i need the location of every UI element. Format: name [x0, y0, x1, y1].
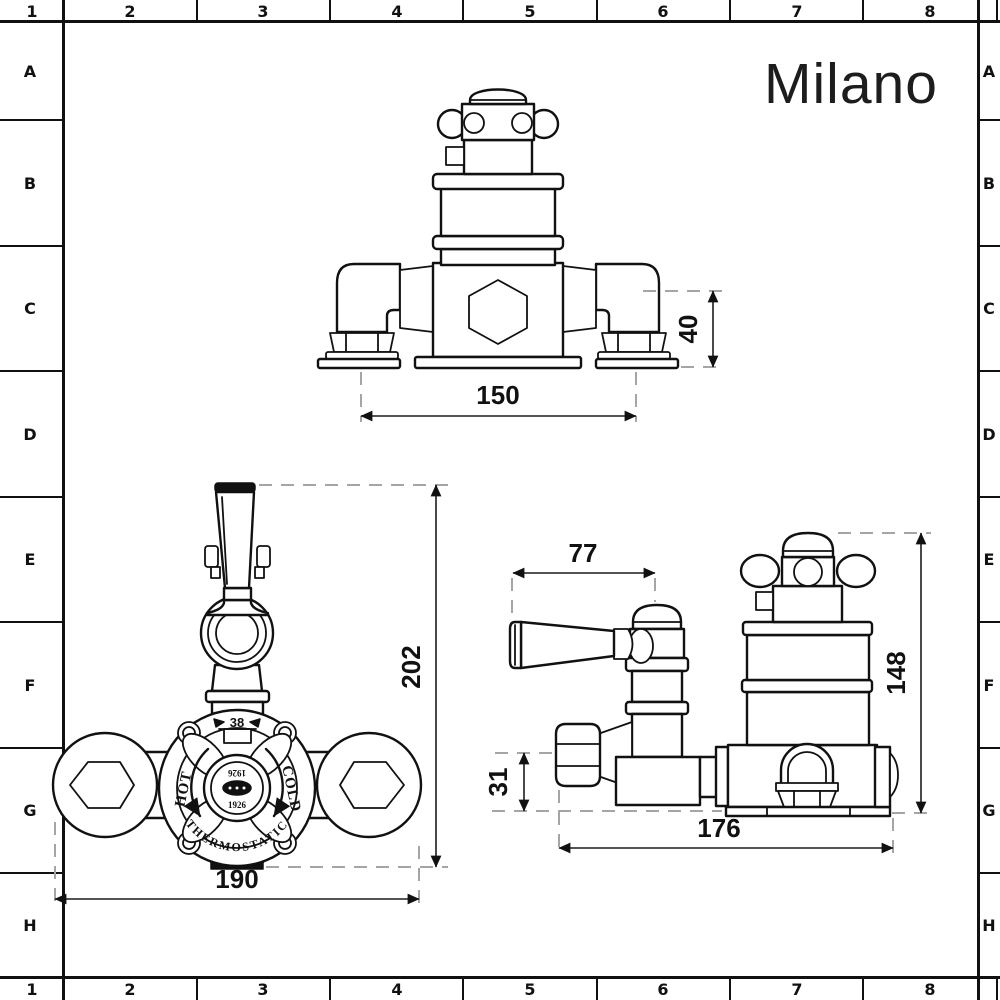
grid-col-label: 3: [257, 2, 268, 21]
valve-mid-body: [441, 249, 555, 265]
grid-col-label: 7: [791, 2, 802, 21]
grid-row-label: E: [984, 550, 995, 569]
dimension-value: 202: [396, 645, 426, 688]
grid-row-label: H: [982, 916, 995, 935]
grid-row-label: C: [24, 299, 36, 318]
right-ticks: [978, 120, 1000, 873]
badge-dot: [243, 787, 246, 790]
grid-row-label: D: [23, 425, 36, 444]
diverter-foot: [616, 757, 700, 805]
grid-col-label: 5: [524, 2, 535, 21]
valve-top-flange: [433, 174, 563, 189]
grid-row-label: G: [23, 801, 36, 820]
grid-col-label: 4: [391, 980, 402, 999]
grid-row-label: F: [25, 676, 36, 695]
grid-col-label: 6: [657, 2, 668, 21]
grid-col-label: 8: [924, 980, 935, 999]
lever-cap: [215, 483, 255, 492]
grid-col-label: 4: [391, 2, 402, 21]
grid-row-label: C: [983, 299, 995, 318]
badge-dot: [236, 787, 239, 790]
dimension-value: 150: [476, 380, 519, 410]
diverter-dome: [633, 605, 681, 629]
grid-row-label: F: [984, 676, 995, 695]
dimension-value: 176: [697, 813, 740, 843]
diverter-lower: [632, 714, 682, 757]
right-body-boss: [563, 266, 596, 332]
crosshead-left-arm: [741, 555, 779, 587]
crosshead-stop-button: [446, 147, 464, 165]
main-ring: [742, 680, 872, 692]
dimension-front-top-width: 150: [361, 372, 636, 422]
grid-col-label: 3: [257, 980, 268, 999]
right-wall-plate: [596, 359, 678, 368]
lever-ferrule: [224, 588, 251, 600]
wall-flange: [875, 747, 890, 807]
crosshead-stem: [464, 140, 532, 174]
left-ticks: [0, 120, 63, 873]
compression-nut: [556, 724, 600, 786]
main-body: [747, 635, 869, 680]
dimension-value: 31: [483, 768, 513, 797]
grid-col-label: 8: [924, 2, 935, 21]
grid-col-label: 5: [524, 980, 535, 999]
neck-flange: [206, 691, 269, 702]
crosshead-right-hub: [512, 113, 532, 133]
grid-row-label: B: [983, 174, 995, 193]
view-front-face: 1926 1926 38 HOT COLD THERMOSTATIC: [53, 483, 421, 869]
badge-dot: [229, 787, 232, 790]
main-stop-button: [756, 592, 773, 610]
top-ticks: [197, 0, 997, 21]
right-union-nut: [602, 333, 666, 352]
dimension-side-handle-reach: 77: [512, 538, 655, 620]
lever-left-nub: [211, 567, 220, 578]
left-elbow: [337, 264, 400, 332]
left-wall-plate: [318, 359, 400, 368]
diverter-ring: [626, 702, 688, 714]
technical-drawing-svg: 1 2 3 4 5 6 7 8 1 2 3 4 5 6 7 8 A B C D …: [0, 0, 1000, 1000]
dimension-value: 40: [673, 315, 703, 344]
crosshead-right-arm: [837, 555, 875, 587]
view-front-top: [318, 90, 678, 369]
grid-col-label: 2: [124, 2, 135, 21]
temp-override-button: [224, 729, 251, 743]
left-body-boss: [400, 266, 433, 332]
lever-right-tab: [257, 546, 270, 567]
bottom-ticks: [197, 977, 997, 1000]
badge-year-top: 1926: [228, 768, 247, 778]
crosshead-dome-side: [783, 533, 833, 557]
grid-row-label: B: [24, 174, 36, 193]
arch-nut: [778, 791, 836, 807]
link-flange: [716, 747, 728, 806]
grid-row-label: E: [25, 550, 36, 569]
crosshead-dome: [470, 90, 526, 105]
arch-plinth: [776, 783, 838, 791]
right-elbow: [596, 264, 659, 332]
grid-row-label: G: [982, 801, 995, 820]
grid-col-label: 7: [791, 980, 802, 999]
view-side: [510, 533, 898, 816]
grid-col-label: 2: [124, 980, 135, 999]
grid-col-label: 1: [26, 980, 37, 999]
dimension-value: 77: [569, 538, 598, 568]
wall-pipe-stub: [890, 753, 898, 797]
dial-temp-marker: 38: [230, 715, 244, 730]
grid-row-label: H: [23, 916, 36, 935]
diverter-body: [632, 671, 682, 702]
main-flange: [743, 622, 872, 635]
grid-col-label: 1: [26, 2, 37, 21]
valve-mid-ring: [433, 236, 563, 249]
crosshead-left-hub: [464, 113, 484, 133]
grid-row-label: D: [982, 425, 995, 444]
dimension-value: 190: [215, 864, 258, 894]
main-stem: [773, 586, 842, 622]
grid-col-label: 6: [657, 980, 668, 999]
badge-year-bottom: 1926: [228, 800, 247, 810]
lever-ferrule-side: [614, 629, 633, 659]
grid-row-label: A: [24, 62, 37, 81]
lever-left-tab: [205, 546, 218, 567]
handle-ring-inner: [216, 612, 258, 654]
dimension-value: 148: [881, 651, 911, 694]
lever-handle-side: [521, 622, 614, 668]
valve-base-plate: [415, 357, 581, 368]
crosshead-front-hub: [794, 558, 822, 586]
left-union-nut: [330, 333, 394, 352]
grid-row-label: A: [983, 62, 996, 81]
drawing-sheet: 1 2 3 4 5 6 7 8 1 2 3 4 5 6 7 8 A B C D …: [0, 0, 1000, 1000]
valve-upper-body: [441, 188, 555, 236]
main-lower-body: [747, 692, 869, 745]
lever-right-nub: [255, 567, 264, 578]
side-base-plate: [726, 807, 890, 816]
brand-logo: Milano: [764, 52, 938, 116]
